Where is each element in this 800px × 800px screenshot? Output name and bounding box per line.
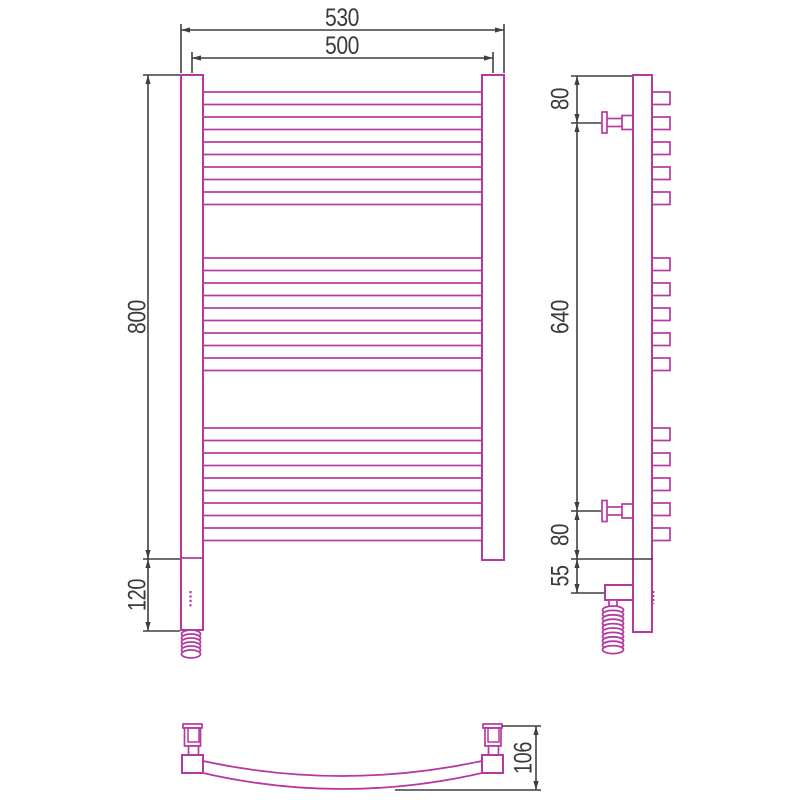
front-left-post (181, 75, 203, 630)
front-rungs (203, 92, 482, 541)
bottom-right-bracket (483, 724, 502, 755)
dim-element-offset-label: 55 (546, 566, 574, 587)
dim-center-width-label: 500 (325, 32, 359, 60)
towel-rail-technical-drawing: 530 500 800 120 (0, 0, 800, 800)
dim-depth-label: 106 (509, 742, 537, 774)
front-view (181, 75, 504, 658)
dim-bracket-span-label: 640 (546, 300, 574, 334)
heating-element-housing (605, 585, 633, 600)
side-post-bar (633, 75, 652, 632)
dim-bottom-section-label: 120 (123, 579, 151, 611)
dim-bracket-to-bottom-label: 80 (546, 524, 574, 546)
wall-bracket-bottom (602, 501, 633, 522)
side-view (602, 75, 670, 654)
side-rungs (652, 92, 670, 541)
bottom-right-post (482, 755, 503, 773)
dim-top-to-bracket-label: 80 (546, 88, 574, 110)
bottom-left-bracket (183, 724, 202, 755)
bottom-left-post (182, 755, 203, 773)
front-right-post (482, 75, 504, 560)
wall-bracket-top (602, 112, 633, 133)
bottom-view: 106 (182, 724, 541, 790)
dim-overall-width-label: 530 (325, 4, 359, 32)
front-power-cable-coil (182, 630, 201, 658)
dim-height-label: 800 (123, 300, 151, 334)
curved-rung-fill (203, 761, 482, 789)
drawing-canvas: 530 500 800 120 (0, 0, 800, 800)
side-power-cable-coil (603, 606, 624, 654)
